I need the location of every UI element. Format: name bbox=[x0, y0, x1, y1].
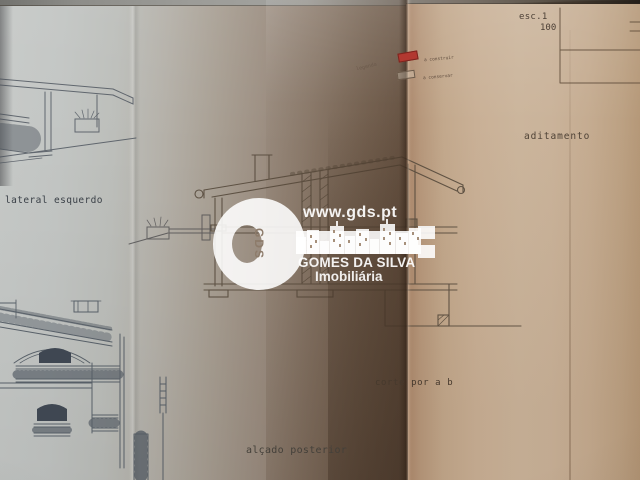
gds-key-monogram: GDS bbox=[250, 226, 266, 262]
watermark-website: www.gds.pt bbox=[303, 204, 397, 222]
label-addendum: aditamento bbox=[524, 131, 590, 142]
scale-label: esc.1 bbox=[519, 12, 548, 22]
scale-value: 100 bbox=[540, 23, 556, 33]
watermark-tagline: Imobiliária bbox=[315, 269, 383, 284]
watermark-company-name: GOMES DA SILVA bbox=[298, 255, 415, 270]
label-section: corte por a b bbox=[375, 378, 453, 388]
photo-of-architectural-drawing: esc.1 100 legenda a construir a conserva… bbox=[0, 0, 640, 480]
label-rear-elevation: alçado posterior bbox=[246, 445, 347, 456]
label-left-elevation: lateral esquerdo bbox=[5, 195, 103, 206]
